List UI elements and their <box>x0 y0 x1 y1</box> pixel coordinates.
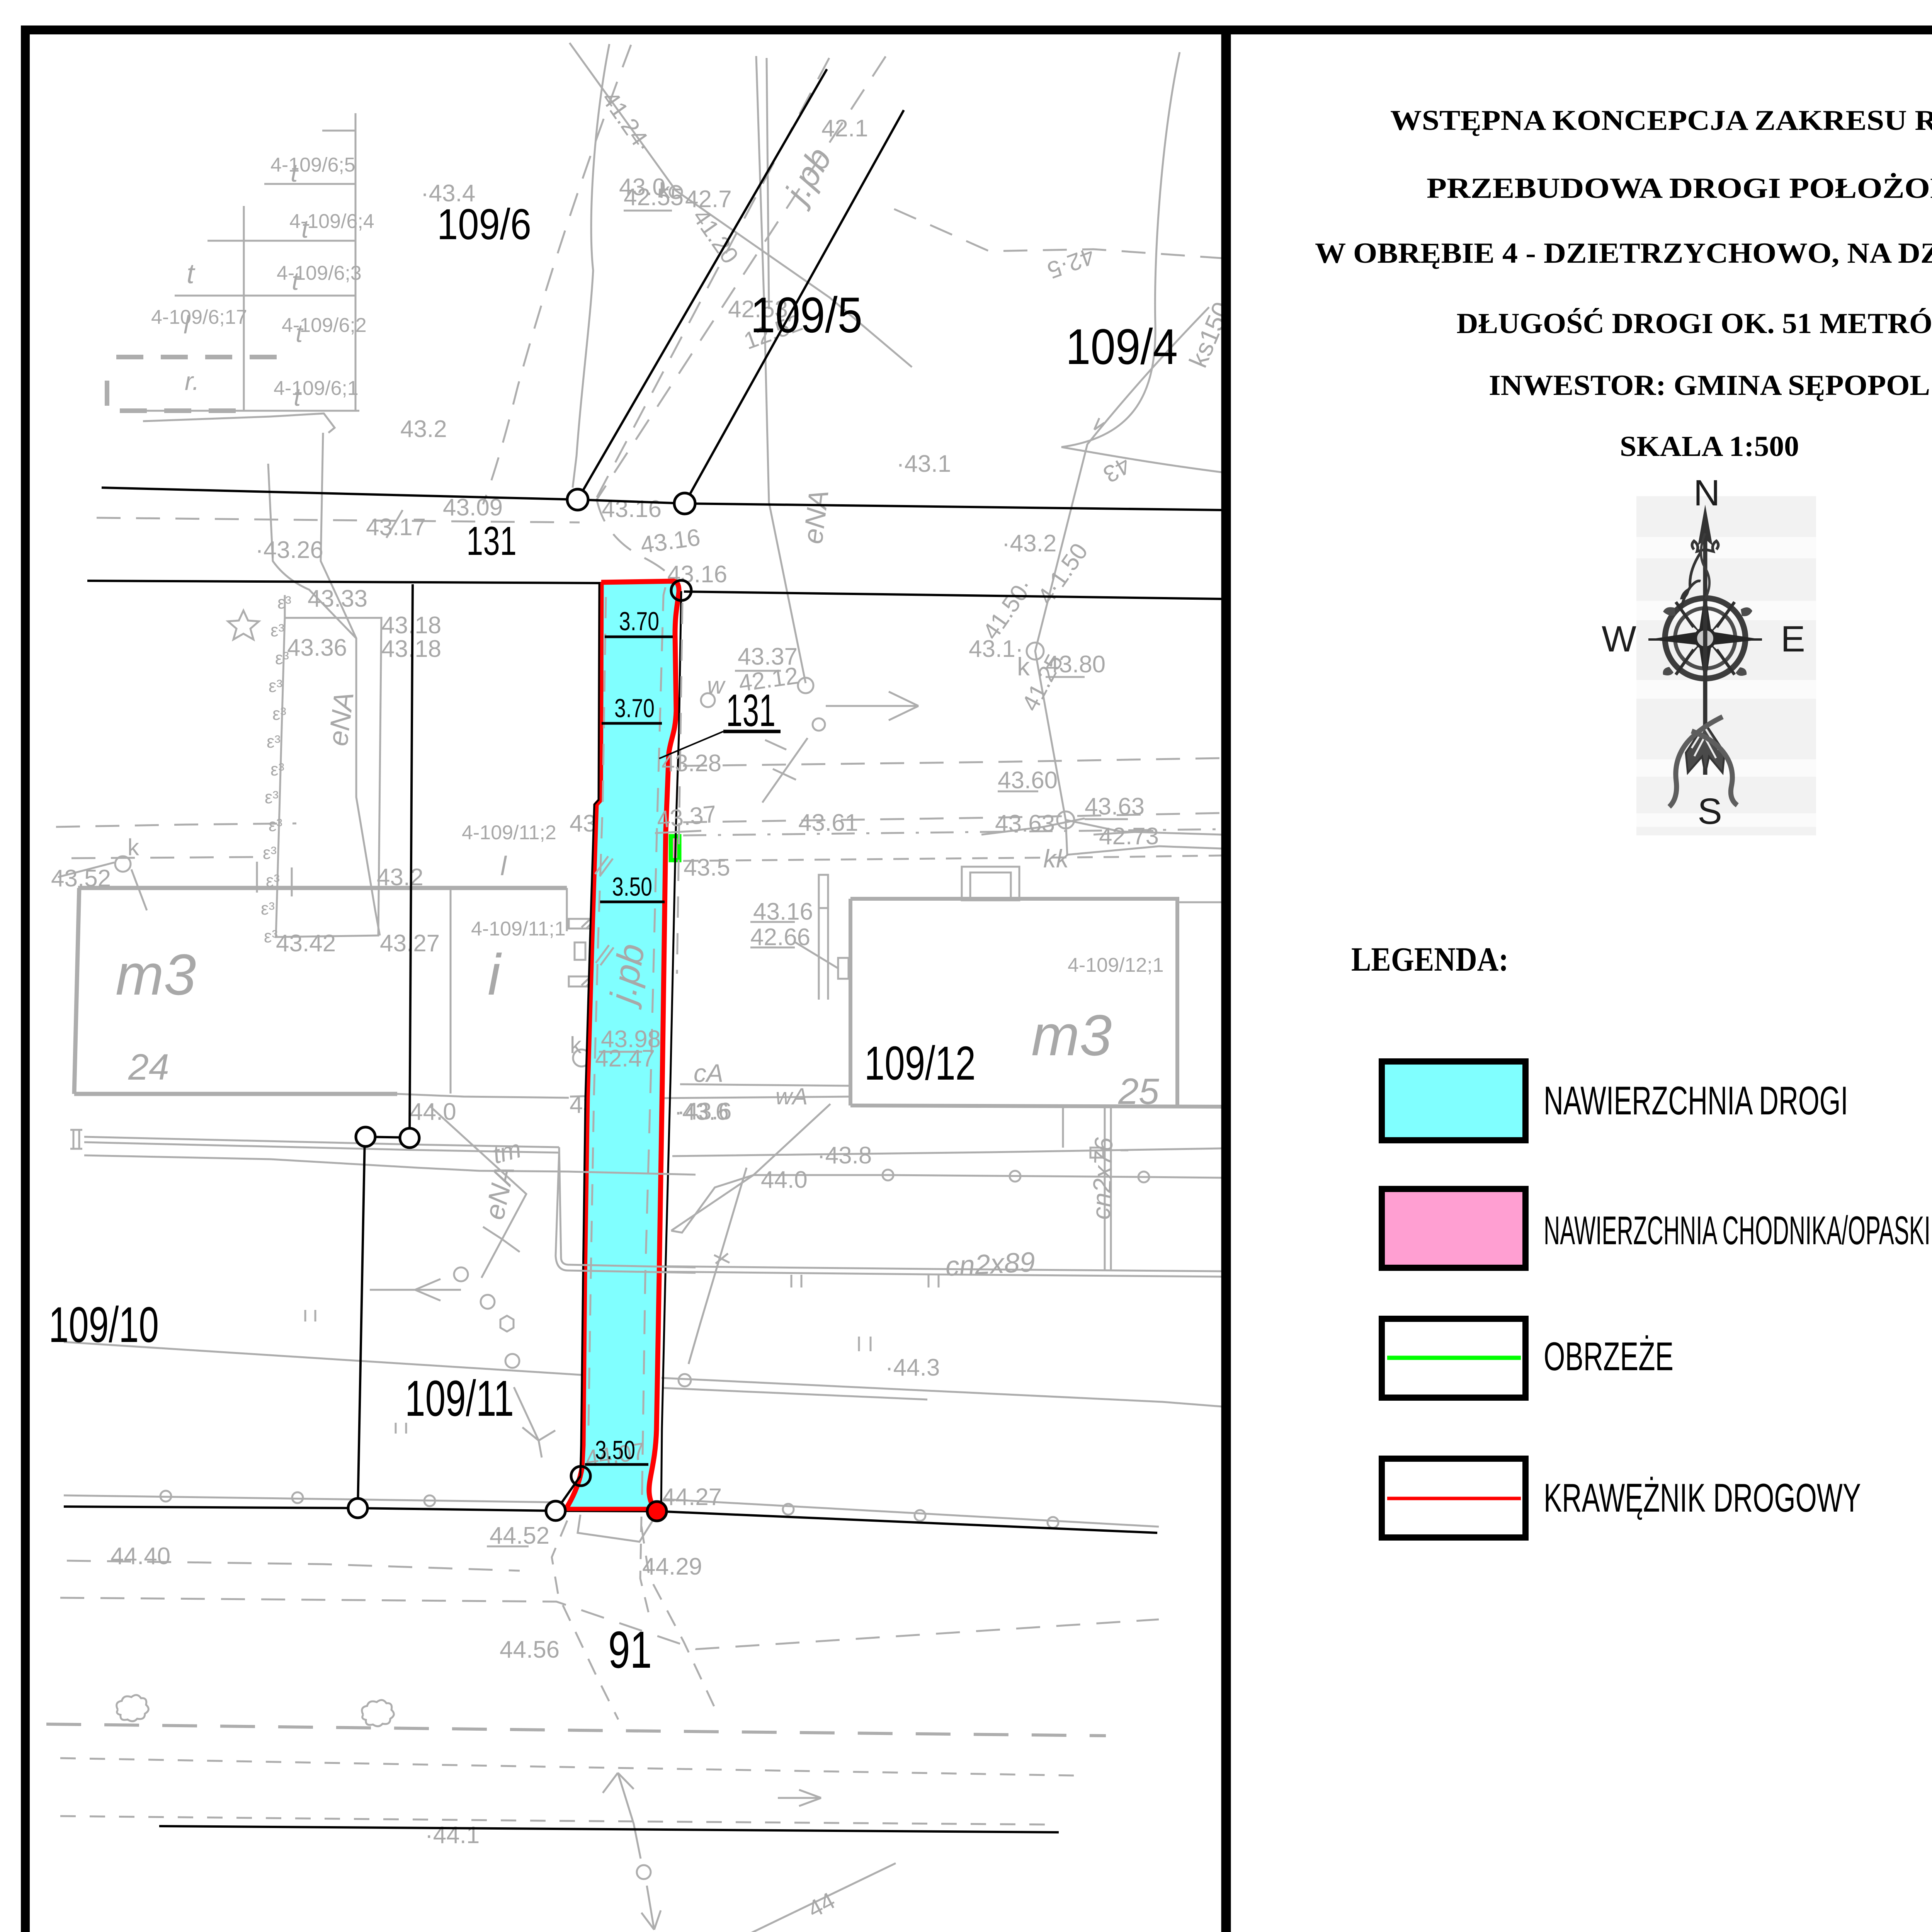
svg-text:l: l <box>500 851 507 881</box>
svg-text:43.2: 43.2 <box>400 416 447 442</box>
svg-text:4-109/6;17: 4-109/6;17 <box>151 306 247 328</box>
svg-text:m3: m3 <box>116 942 196 1007</box>
svg-text:SKALA 1:500: SKALA 1:500 <box>1620 430 1799 463</box>
svg-text:·43.8: ·43.8 <box>817 1142 872 1169</box>
svg-text:ε³: ε³ <box>277 592 291 612</box>
svg-text:t: t <box>187 259 196 289</box>
svg-text:E: E <box>1781 619 1805 660</box>
svg-text:PRZEBUDOWA DROGI POŁOŻONEJ: PRZEBUDOWA DROGI POŁOŻONEJ <box>1427 172 1932 204</box>
svg-text:44.29: 44.29 <box>642 1553 702 1580</box>
svg-text:3.70: 3.70 <box>619 607 659 636</box>
svg-text:INWESTOR: GMINA SĘPOPOL: INWESTOR: GMINA SĘPOPOL <box>1489 369 1930 401</box>
svg-text:4-109/6;1: 4-109/6;1 <box>274 377 359 400</box>
svg-text:44.56: 44.56 <box>500 1636 560 1663</box>
svg-text:NAWIERZCHNIA DROGI: NAWIERZCHNIA DROGI <box>1544 1078 1848 1123</box>
svg-text:42.1: 42.1 <box>821 115 868 142</box>
svg-text:ε³: ε³ <box>266 871 280 891</box>
svg-text:l: l <box>184 310 190 339</box>
svg-text:·44.1: ·44.1 <box>425 1822 480 1849</box>
svg-text:109/12: 109/12 <box>864 1037 976 1090</box>
svg-text:eNA: eNA <box>797 488 834 546</box>
svg-text:NAWIERZCHNIA CHODNIKA/OPASKI: NAWIERZCHNIA CHODNIKA/OPASKI <box>1544 1208 1930 1253</box>
svg-text:43.1·: 43.1· <box>969 636 1023 662</box>
svg-text:cA: cA <box>694 1059 723 1087</box>
svg-text:t: t <box>292 267 300 295</box>
svg-text:cn2x89: cn2x89 <box>945 1247 1036 1282</box>
svg-text:ε³: ε³ <box>263 843 277 863</box>
svg-text:ε³: ε³ <box>270 620 284 640</box>
svg-text:43.63: 43.63 <box>1085 793 1145 820</box>
svg-text:W OBRĘBIE 4 - DZIETRZYCHOWO, N: W OBRĘBIE 4 - DZIETRZYCHOWO, NA DZIAŁCE:… <box>1315 237 1932 269</box>
svg-text:·43.6: ·43.6 <box>677 1098 731 1125</box>
svg-text:24: 24 <box>128 1047 169 1088</box>
svg-text:109/5: 109/5 <box>750 287 862 343</box>
svg-text:44.40: 44.40 <box>111 1543 170 1570</box>
svg-text:·43.2: ·43.2 <box>1002 530 1056 557</box>
svg-text:k: k <box>128 834 139 860</box>
svg-text:3.50: 3.50 <box>612 872 652 901</box>
svg-text:43.16: 43.16 <box>753 898 813 925</box>
svg-text:t: t <box>291 158 299 187</box>
svg-text:LEGENDA:: LEGENDA: <box>1351 941 1509 978</box>
svg-text:ε³: ε³ <box>269 676 282 696</box>
svg-text:43.33: 43.33 <box>308 585 367 612</box>
svg-text:43.2: 43.2 <box>377 864 423 891</box>
svg-text:t: t <box>296 319 304 347</box>
svg-text:N: N <box>1694 473 1720 514</box>
svg-text:43.5: 43.5 <box>684 854 730 881</box>
svg-text:44.0: 44.0 <box>410 1099 456 1125</box>
svg-text:WSTĘPNA KONCEPCJA ZAKRESU ROBÓ: WSTĘPNA KONCEPCJA ZAKRESU ROBÓT <box>1390 105 1932 136</box>
svg-text:w: w <box>707 672 726 699</box>
svg-text:k: k <box>570 1032 582 1058</box>
svg-text:r.: r. <box>185 367 199 395</box>
svg-text:·43.26: ·43.26 <box>255 537 323 563</box>
svg-text:ε³: ε³ <box>261 898 275 918</box>
svg-text:44.0: 44.0 <box>761 1167 808 1193</box>
svg-text:25: 25 <box>1118 1071 1160 1112</box>
svg-text:ε³: ε³ <box>275 648 289 668</box>
svg-text:43.60: 43.60 <box>998 767 1058 794</box>
svg-text:k: k <box>659 178 670 202</box>
svg-text:eNA: eNA <box>322 690 359 748</box>
svg-text:DŁUGOŚĆ DROGI OK. 51 METRÓW: DŁUGOŚĆ DROGI OK. 51 METRÓW <box>1457 308 1932 340</box>
svg-text:43.36: 43.36 <box>287 634 347 661</box>
svg-text:44.52: 44.52 <box>490 1522 549 1549</box>
svg-text:131: 131 <box>726 685 776 736</box>
svg-text:109/10: 109/10 <box>49 1296 159 1353</box>
svg-text:43.80: 43.80 <box>1046 651 1105 678</box>
svg-text:KRAWĘŻNIK DROGOWY: KRAWĘŻNIK DROGOWY <box>1544 1476 1861 1520</box>
svg-text:43.17: 43.17 <box>366 514 426 541</box>
svg-text:ε³: ε³ <box>270 759 284 779</box>
svg-text:43.61: 43.61 <box>798 810 858 836</box>
svg-text:ε³: ε³ <box>269 815 282 835</box>
svg-text:4-109/11;1: 4-109/11;1 <box>471 918 566 940</box>
svg-text:131: 131 <box>466 519 517 564</box>
svg-text:S: S <box>1697 791 1722 832</box>
svg-text:t: t <box>301 214 310 243</box>
svg-text:42.73: 42.73 <box>1099 823 1159 850</box>
svg-text:4-109/6;2: 4-109/6;2 <box>282 314 367 337</box>
svg-text:42.47: 42.47 <box>595 1045 655 1072</box>
svg-text:ε³: ε³ <box>267 731 281 752</box>
svg-text:44.27: 44.27 <box>662 1484 722 1510</box>
svg-text:OBRZEŻE: OBRZEŻE <box>1544 1334 1673 1379</box>
svg-text:43.63: 43.63 <box>995 810 1055 837</box>
svg-text:ε³: ε³ <box>265 787 279 807</box>
svg-text:wA: wA <box>776 1083 808 1109</box>
svg-text:cn2x76: cn2x76 <box>1087 1137 1118 1220</box>
svg-text:4-109/12;1: 4-109/12;1 <box>1068 954 1164 976</box>
svg-text:3.70: 3.70 <box>614 694 655 723</box>
svg-text:·44.3: ·44.3 <box>885 1354 940 1381</box>
svg-text:4-109/6;5: 4-109/6;5 <box>270 154 355 176</box>
svg-text:3.50: 3.50 <box>595 1435 635 1465</box>
svg-text:W: W <box>1602 619 1636 660</box>
svg-text:i: i <box>488 942 502 1007</box>
svg-text:4-109/11;2: 4-109/11;2 <box>462 821 556 844</box>
svg-text:43.52: 43.52 <box>51 865 111 892</box>
svg-text:42.55: 42.55 <box>624 184 684 211</box>
svg-text:109/6: 109/6 <box>437 200 531 248</box>
svg-text:·43.1: ·43.1 <box>896 451 951 477</box>
svg-text:ε³: ε³ <box>272 704 286 724</box>
svg-text:t: t <box>294 383 302 411</box>
svg-text:109/11: 109/11 <box>405 1370 514 1427</box>
svg-text:43.42: 43.42 <box>276 930 336 957</box>
svg-text:m3: m3 <box>1031 1003 1112 1068</box>
svg-text:k: k <box>1017 652 1030 681</box>
svg-text:109/4: 109/4 <box>1066 318 1178 375</box>
svg-text:91: 91 <box>608 1621 652 1679</box>
svg-text:4-109/6;3: 4-109/6;3 <box>277 262 362 284</box>
svg-text:42.66: 42.66 <box>750 924 810 951</box>
svg-text:kk: kk <box>1043 844 1070 873</box>
